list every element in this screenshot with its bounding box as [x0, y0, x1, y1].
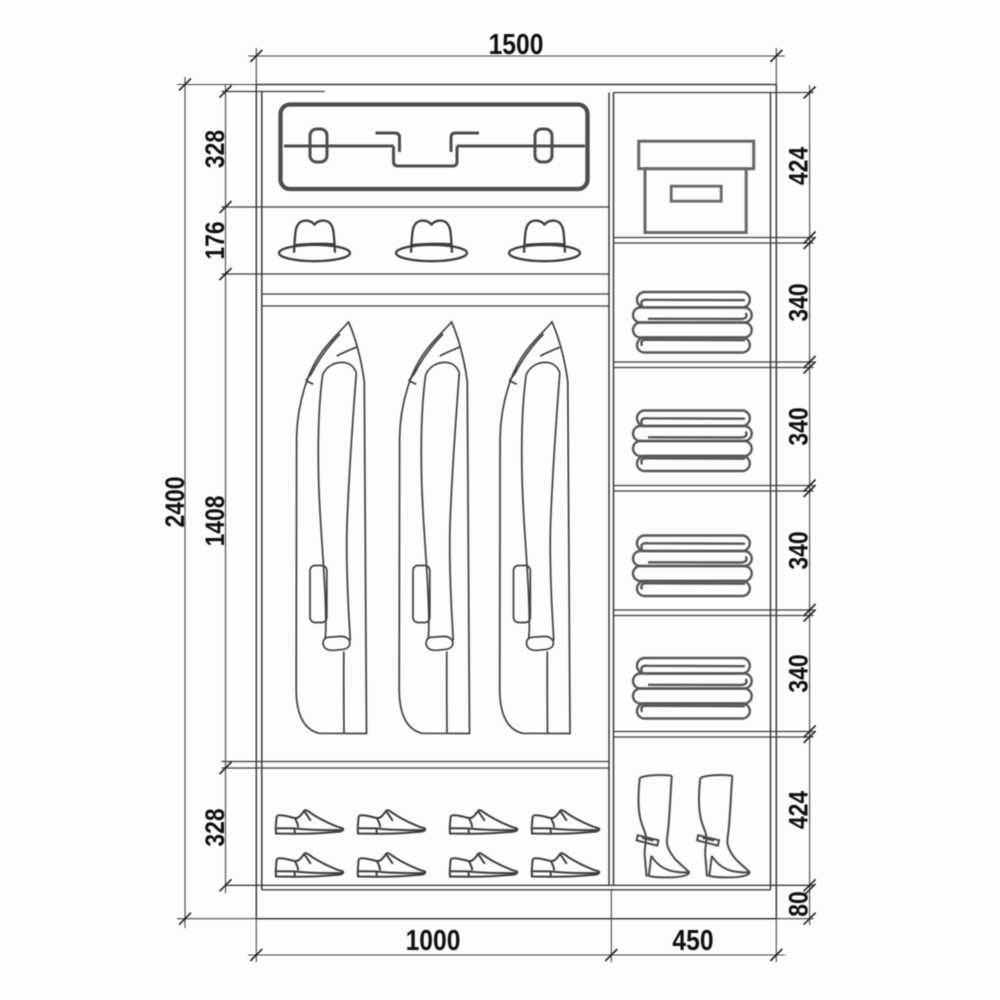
svg-text:1408: 1408 — [200, 495, 230, 546]
svg-text:450: 450 — [672, 924, 713, 956]
svg-text:328: 328 — [200, 130, 230, 168]
svg-text:340: 340 — [784, 407, 814, 445]
svg-text:80: 80 — [784, 891, 814, 917]
svg-text:424: 424 — [784, 791, 814, 829]
svg-text:2400: 2400 — [160, 476, 190, 527]
svg-text:176: 176 — [200, 221, 230, 259]
svg-text:328: 328 — [200, 808, 230, 846]
svg-text:340: 340 — [784, 531, 814, 569]
svg-text:424: 424 — [784, 147, 814, 185]
svg-text:340: 340 — [784, 654, 814, 692]
svg-text:1000: 1000 — [406, 924, 461, 956]
svg-text:1500: 1500 — [489, 28, 544, 60]
svg-text:340: 340 — [784, 283, 814, 321]
